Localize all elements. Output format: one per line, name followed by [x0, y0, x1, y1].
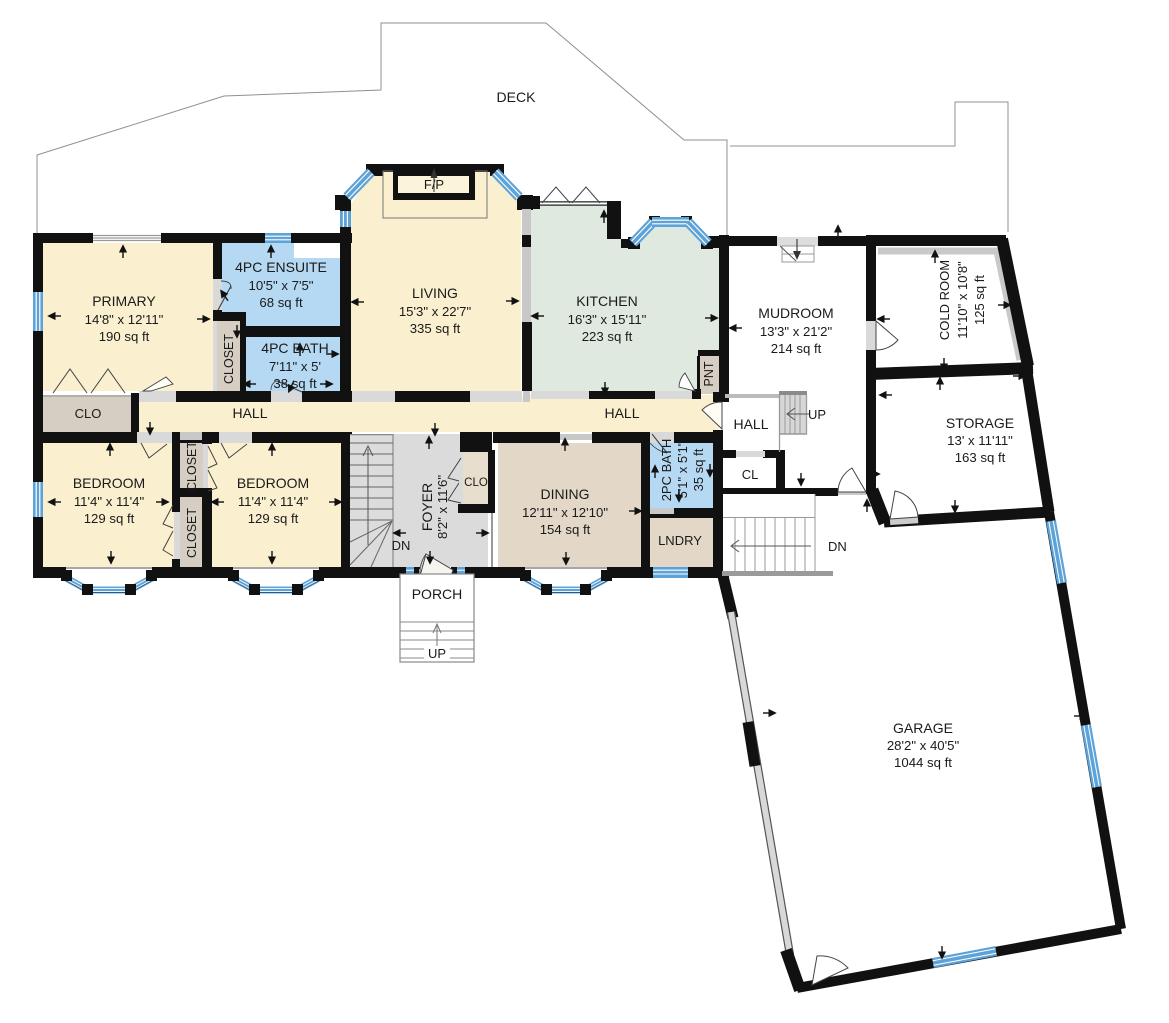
svg-text:GARAGE: GARAGE	[893, 720, 953, 736]
svg-text:CLOSET: CLOSET	[222, 334, 236, 384]
svg-text:CL: CL	[742, 467, 759, 482]
svg-text:125 sq ft: 125 sq ft	[972, 275, 987, 325]
svg-text:335 sq ft: 335 sq ft	[410, 321, 461, 336]
svg-text:CLOSET: CLOSET	[185, 508, 199, 558]
svg-text:2PC BATH: 2PC BATH	[659, 439, 674, 502]
svg-text:UP: UP	[428, 646, 446, 661]
svg-text:129 sq ft: 129 sq ft	[84, 511, 135, 526]
svg-text:HALL: HALL	[232, 405, 267, 421]
svg-text:CLOSET: CLOSET	[185, 441, 199, 491]
svg-text:12'11" x 12'10": 12'11" x 12'10"	[522, 505, 608, 520]
svg-text:KITCHEN: KITCHEN	[576, 293, 637, 309]
svg-text:14'8" x 12'11": 14'8" x 12'11"	[85, 312, 164, 327]
svg-text:HALL: HALL	[604, 405, 639, 421]
svg-text:LNDRY: LNDRY	[658, 533, 702, 548]
svg-text:DECK: DECK	[497, 89, 537, 105]
svg-text:BEDROOM: BEDROOM	[237, 475, 309, 491]
svg-text:4PC ENSUITE: 4PC ENSUITE	[235, 259, 327, 275]
svg-text:COLD ROOM: COLD ROOM	[937, 260, 952, 340]
svg-text:FOYER: FOYER	[419, 483, 435, 531]
svg-text:214 sq ft: 214 sq ft	[771, 341, 822, 356]
svg-text:163 sq ft: 163 sq ft	[955, 450, 1006, 465]
svg-text:223 sq ft: 223 sq ft	[582, 329, 633, 344]
svg-text:190 sq ft: 190 sq ft	[99, 329, 150, 344]
svg-text:15'3" x 22'7": 15'3" x 22'7"	[399, 304, 472, 319]
svg-text:STORAGE: STORAGE	[946, 415, 1014, 431]
svg-text:UP: UP	[808, 407, 826, 422]
svg-text:4PC BATH: 4PC BATH	[261, 340, 328, 356]
svg-text:PRIMARY: PRIMARY	[92, 293, 156, 309]
svg-text:68 sq ft: 68 sq ft	[259, 295, 303, 310]
svg-text:38 sq ft: 38 sq ft	[273, 376, 317, 391]
svg-text:HALL: HALL	[733, 416, 768, 432]
svg-text:13' x 11'11": 13' x 11'11"	[947, 433, 1013, 448]
svg-text:PNT: PNT	[702, 361, 716, 386]
svg-text:16'3" x 15'11": 16'3" x 15'11"	[568, 312, 647, 327]
svg-text:7'11" x 5': 7'11" x 5'	[269, 359, 321, 374]
svg-text:LIVING: LIVING	[412, 285, 458, 301]
svg-text:DN: DN	[392, 538, 411, 553]
svg-text:1044 sq ft: 1044 sq ft	[894, 755, 952, 770]
svg-text:8'2" x 11'6": 8'2" x 11'6"	[435, 475, 450, 539]
svg-text:MUDROOM: MUDROOM	[758, 305, 833, 321]
svg-text:DINING: DINING	[541, 486, 590, 502]
svg-text:11'10" x 10'8": 11'10" x 10'8"	[955, 261, 970, 339]
svg-text:DN: DN	[828, 539, 847, 554]
svg-text:154 sq ft: 154 sq ft	[540, 522, 591, 537]
svg-text:PORCH: PORCH	[412, 586, 463, 602]
svg-text:129 sq ft: 129 sq ft	[248, 511, 299, 526]
svg-text:10'5" x 7'5": 10'5" x 7'5"	[249, 278, 314, 293]
svg-text:CLO: CLO	[464, 477, 488, 489]
svg-text:11'4" x 11'4": 11'4" x 11'4"	[238, 494, 309, 509]
svg-text:28'2" x 40'5": 28'2" x 40'5"	[887, 738, 960, 753]
svg-text:11'4" x 11'4": 11'4" x 11'4"	[74, 494, 145, 509]
svg-text:13'3" x 21'2": 13'3" x 21'2"	[760, 324, 833, 339]
svg-text:5'1" x 5'1": 5'1" x 5'1"	[675, 441, 690, 498]
svg-text:BEDROOM: BEDROOM	[73, 475, 145, 491]
svg-text:CLO: CLO	[75, 406, 102, 421]
svg-text:35 sq ft: 35 sq ft	[691, 448, 706, 491]
